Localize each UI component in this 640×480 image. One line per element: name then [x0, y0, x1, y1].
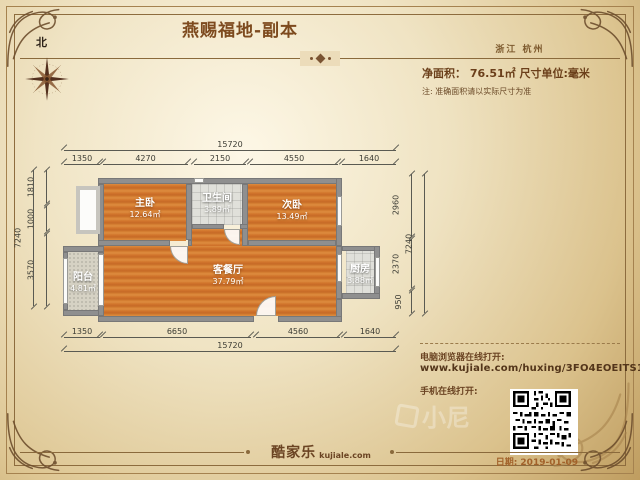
footer-divider-left [20, 452, 244, 453]
dim-bottom-seg: 1350 [64, 337, 100, 338]
dim-right-seg: 2960 [411, 174, 412, 236]
room-label-balcony: 阳台 4.81㎡ [70, 268, 96, 294]
room-label-master-bedroom: 主卧 12.64㎡ [130, 194, 161, 220]
room-label-living-dining: 客餐厅 37.79㎡ [213, 261, 244, 287]
wall [240, 224, 248, 229]
dim-top-seg: 1640 [342, 164, 396, 165]
dim-left-total: 7240 [33, 170, 34, 306]
dim-top-total: 15720 [64, 150, 396, 151]
share-url[interactable]: www.kujiale.com/huxing/3FO4EOEITS10 [420, 363, 640, 374]
kujiale-logo: 酷家乐 kujiale.com [250, 442, 392, 462]
dim-top-seg: 4270 [103, 164, 188, 165]
wall [98, 240, 170, 246]
watermark-cube-icon [394, 403, 419, 428]
qr-code [510, 389, 578, 455]
net-area-label: 净面积： 76.51㎡ 尺寸单位:毫米 [422, 65, 590, 81]
floorplan-page: 燕赐福地-副本 浙江 杭州 净面积： 76.51㎡ 尺寸单位:毫米 注: 准确面… [0, 0, 640, 480]
brand-domain: kujiale.com [319, 451, 371, 462]
room-label-second-bedroom: 次卧 13.49㎡ [277, 196, 308, 222]
mobile-open-label: 手机在线打开: [420, 384, 478, 397]
corner-ornament-icon [570, 410, 636, 476]
dim-right-total: 7240 [424, 174, 425, 313]
footer-divider-right [396, 452, 620, 453]
dim-bottom-seg: 6650 [103, 337, 251, 338]
divider-ornament-icon [300, 51, 340, 66]
dim-right-seg: 950 [411, 291, 412, 313]
pc-open-label: 电脑浏览器在线打开: [420, 350, 505, 363]
watermark: 小尼 [396, 398, 470, 433]
wall [278, 316, 342, 322]
dim-bottom-total: 15720 [64, 351, 396, 352]
door-opening-kitchen [337, 254, 342, 282]
dim-left-seg: 3570 [46, 234, 47, 306]
room-label-kitchen: 厨房 3.88㎡ [347, 260, 373, 286]
wall [192, 224, 224, 229]
window-kitchen [375, 257, 380, 287]
page-title: 燕赐福地-副本 [60, 16, 420, 41]
dim-bottom-seg: 4560 [256, 337, 340, 338]
wall [342, 293, 380, 299]
room-label-bathroom: 卫生间 3.89㎡ [202, 189, 232, 215]
corner-ornament-icon [4, 410, 70, 476]
window-second-bedroom [337, 196, 342, 226]
window-balcony [63, 258, 68, 304]
corner-ornament-icon [570, 4, 636, 70]
wall [248, 240, 336, 246]
north-label: 北 [36, 34, 47, 50]
window-balcony-living [98, 254, 104, 306]
accuracy-note: 注: 准确面积请以实际尺寸为准 [422, 86, 531, 97]
wall [186, 184, 192, 240]
wall [98, 316, 254, 322]
info-dashed-separator [420, 343, 620, 344]
compass-rose-icon [24, 56, 70, 102]
wall [188, 240, 192, 246]
dim-left-seg: 1000 [46, 206, 47, 231]
dim-top-seg: 4550 [250, 164, 338, 165]
date-label: 日期: 2019-01-09 [450, 455, 578, 468]
wall [98, 178, 342, 184]
window-bathroom-vent [194, 178, 204, 183]
dim-top-seg: 1350 [64, 164, 100, 165]
bay-window [76, 186, 100, 234]
dim-top-seg: 2150 [194, 164, 246, 165]
dim-bottom-seg: 1640 [344, 337, 396, 338]
location-label: 浙江 杭州 [420, 42, 620, 55]
brand-name: 酷家乐 [271, 442, 316, 462]
dim-left-seg: 1810 [46, 170, 47, 203]
wall [242, 184, 248, 246]
